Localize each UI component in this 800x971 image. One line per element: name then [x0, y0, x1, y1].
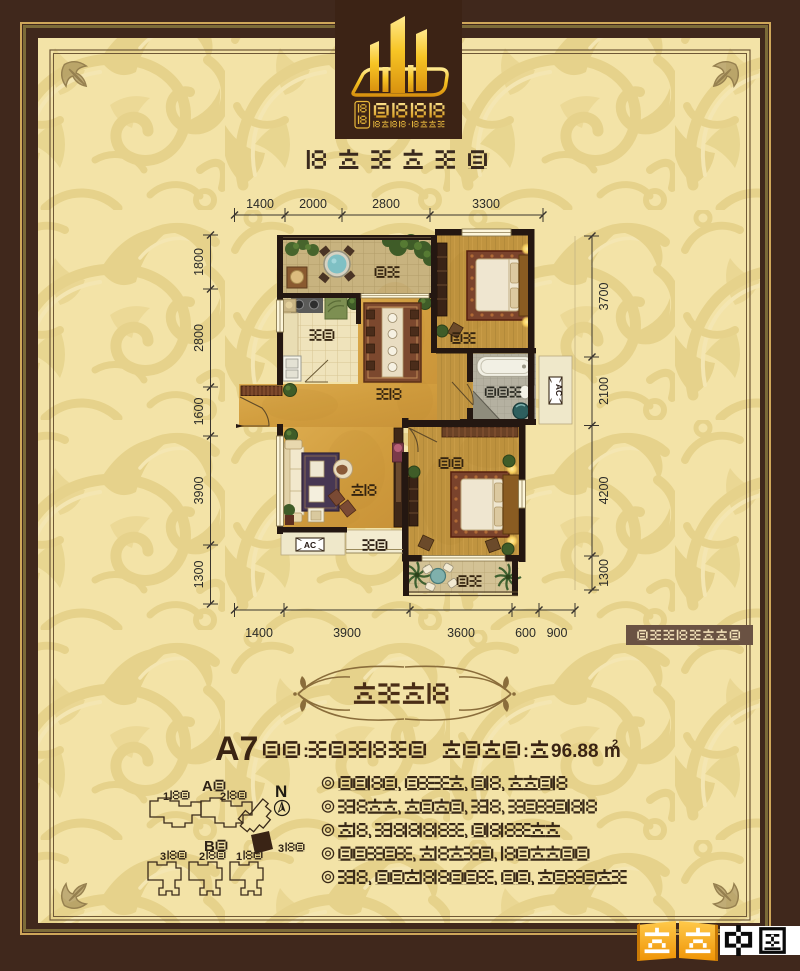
svg-text:3: 3 [278, 843, 284, 855]
svg-text:1300: 1300 [597, 559, 611, 587]
svg-text:4200: 4200 [597, 477, 611, 505]
svg-text:1: 1 [236, 851, 242, 863]
svg-text:2100: 2100 [597, 377, 611, 405]
svg-text:A: A [202, 778, 213, 795]
svg-text:AC: AC [304, 540, 316, 550]
svg-text:3900: 3900 [192, 477, 206, 505]
svg-text:96.88 m: 96.88 m [551, 741, 621, 762]
svg-text:1600: 1600 [192, 398, 206, 426]
svg-text::: : [303, 741, 309, 761]
svg-text:N: N [275, 782, 287, 801]
svg-text:900: 900 [547, 626, 568, 640]
svg-text:2800: 2800 [372, 197, 400, 211]
svg-text:1300: 1300 [192, 561, 206, 589]
svg-text:3900: 3900 [333, 626, 361, 640]
svg-text:1400: 1400 [246, 197, 274, 211]
svg-text::: : [523, 741, 529, 761]
svg-text:3: 3 [160, 851, 166, 863]
svg-text:3300: 3300 [472, 197, 500, 211]
svg-text:2800: 2800 [192, 324, 206, 352]
svg-text:600: 600 [515, 626, 536, 640]
svg-text:3700: 3700 [597, 283, 611, 311]
svg-text:3600: 3600 [447, 626, 475, 640]
svg-text:2000: 2000 [299, 197, 327, 211]
svg-text:1400: 1400 [245, 626, 273, 640]
svg-text:2: 2 [612, 738, 618, 750]
svg-text:1: 1 [163, 791, 169, 803]
svg-text:2: 2 [199, 851, 205, 863]
svg-text:1800: 1800 [192, 248, 206, 276]
svg-text:AC: AC [554, 384, 564, 396]
svg-text:A7: A7 [215, 730, 258, 768]
